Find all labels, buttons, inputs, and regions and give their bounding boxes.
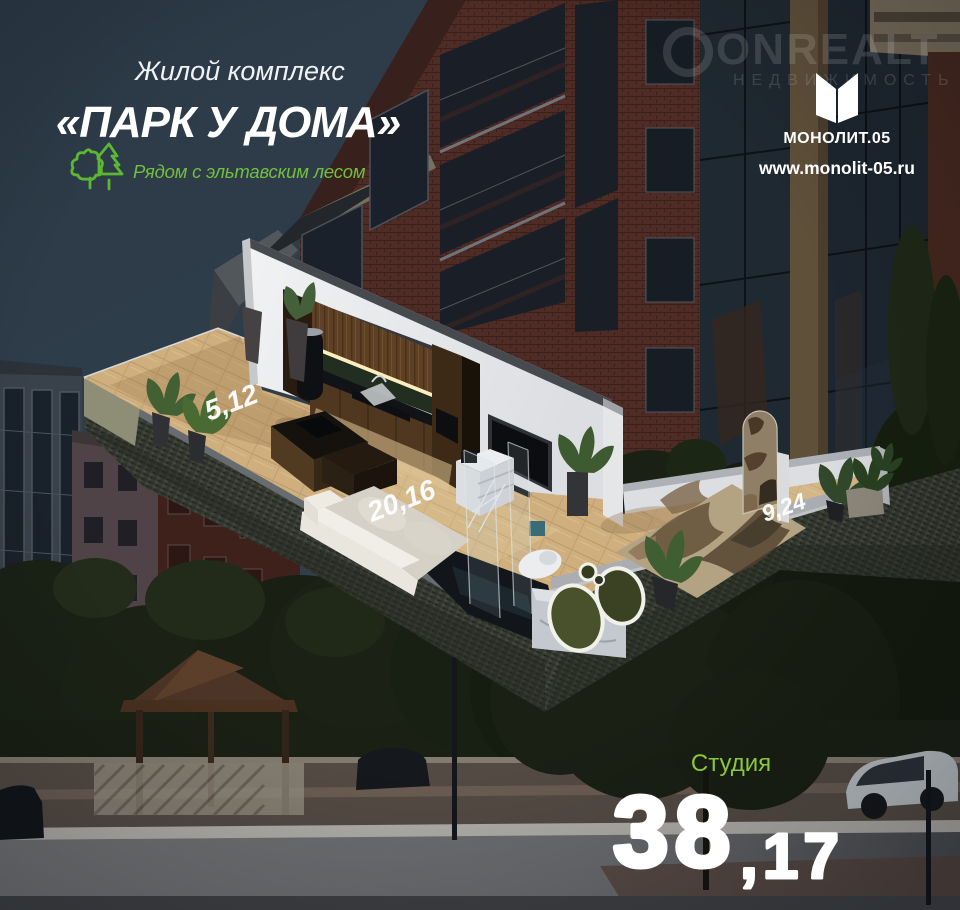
svg-text:www.monolit-05.ru: www.monolit-05.ru — [758, 158, 915, 178]
svg-text:«ПАРК У ДОМА»: «ПАРК У ДОМА» — [56, 98, 401, 147]
svg-text:,17: ,17 — [740, 820, 844, 892]
svg-text:Жилой комплекс: Жилой комплекс — [133, 56, 345, 86]
svg-text:МОНОЛИТ.05: МОНОЛИТ.05 — [783, 130, 890, 147]
svg-text:Рядом с эльтавским лесом: Рядом с эльтавским лесом — [133, 161, 366, 182]
svg-text:ONREALT: ONREALT — [716, 25, 939, 74]
svg-text:38: 38 — [613, 776, 736, 888]
svg-text:Студия: Студия — [691, 750, 771, 777]
